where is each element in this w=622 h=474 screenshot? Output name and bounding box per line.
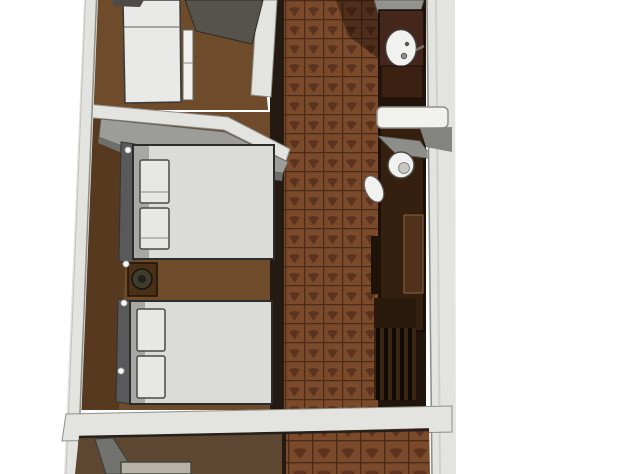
bed-1-pillow-1 <box>140 160 169 203</box>
corridor-tiled-floor <box>284 0 378 410</box>
bed-2-pillow-2 <box>137 356 165 398</box>
top-corner-dark-trim <box>112 0 144 7</box>
counter-left-notch <box>371 236 381 294</box>
bottom-corridor-tiles <box>284 428 430 474</box>
bottom-divider-line <box>282 432 286 474</box>
counter-inner-panel <box>404 215 423 293</box>
wall-dot-3 <box>121 300 127 306</box>
white-door-panel <box>377 107 448 128</box>
top-room-bed <box>123 0 181 103</box>
sink-drain <box>401 53 407 59</box>
round-sink <box>386 30 417 67</box>
cropped-side-table <box>121 462 191 474</box>
floorplan-render <box>0 0 622 474</box>
toilet-inner <box>399 163 410 174</box>
slatted-unit-header <box>374 298 416 330</box>
top-room-side-unit <box>183 30 193 100</box>
bed-2-pillow-1 <box>137 309 165 351</box>
sink-faucet-dot <box>405 42 409 46</box>
floorplan-screenshot <box>0 0 622 474</box>
plant-center <box>138 275 146 283</box>
bed-1-pillow-2 <box>140 208 169 249</box>
vanity-lower-cabinet <box>381 66 423 98</box>
wall-dot-1 <box>125 147 131 153</box>
wall-dot-4 <box>118 368 124 374</box>
wall-dot-2 <box>123 261 129 267</box>
